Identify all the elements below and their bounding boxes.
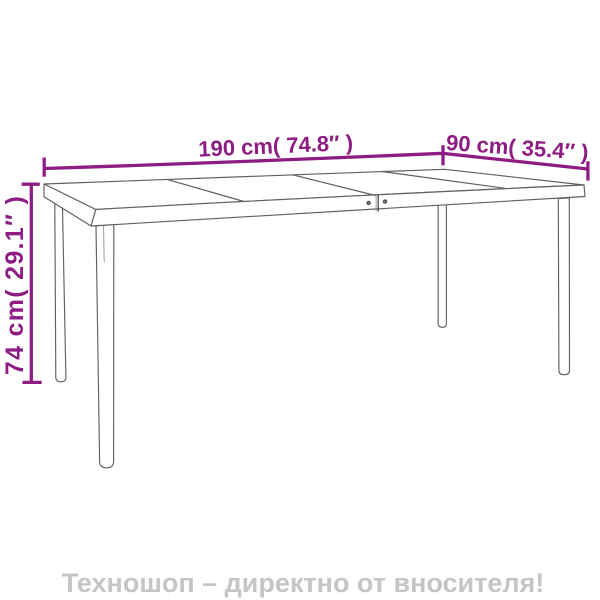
svg-text:Техношоп – директно от вносите: Техношоп – директно от вносителя! bbox=[62, 568, 545, 598]
svg-text:74 cm( 29.1″ ): 74 cm( 29.1″ ) bbox=[1, 195, 29, 375]
